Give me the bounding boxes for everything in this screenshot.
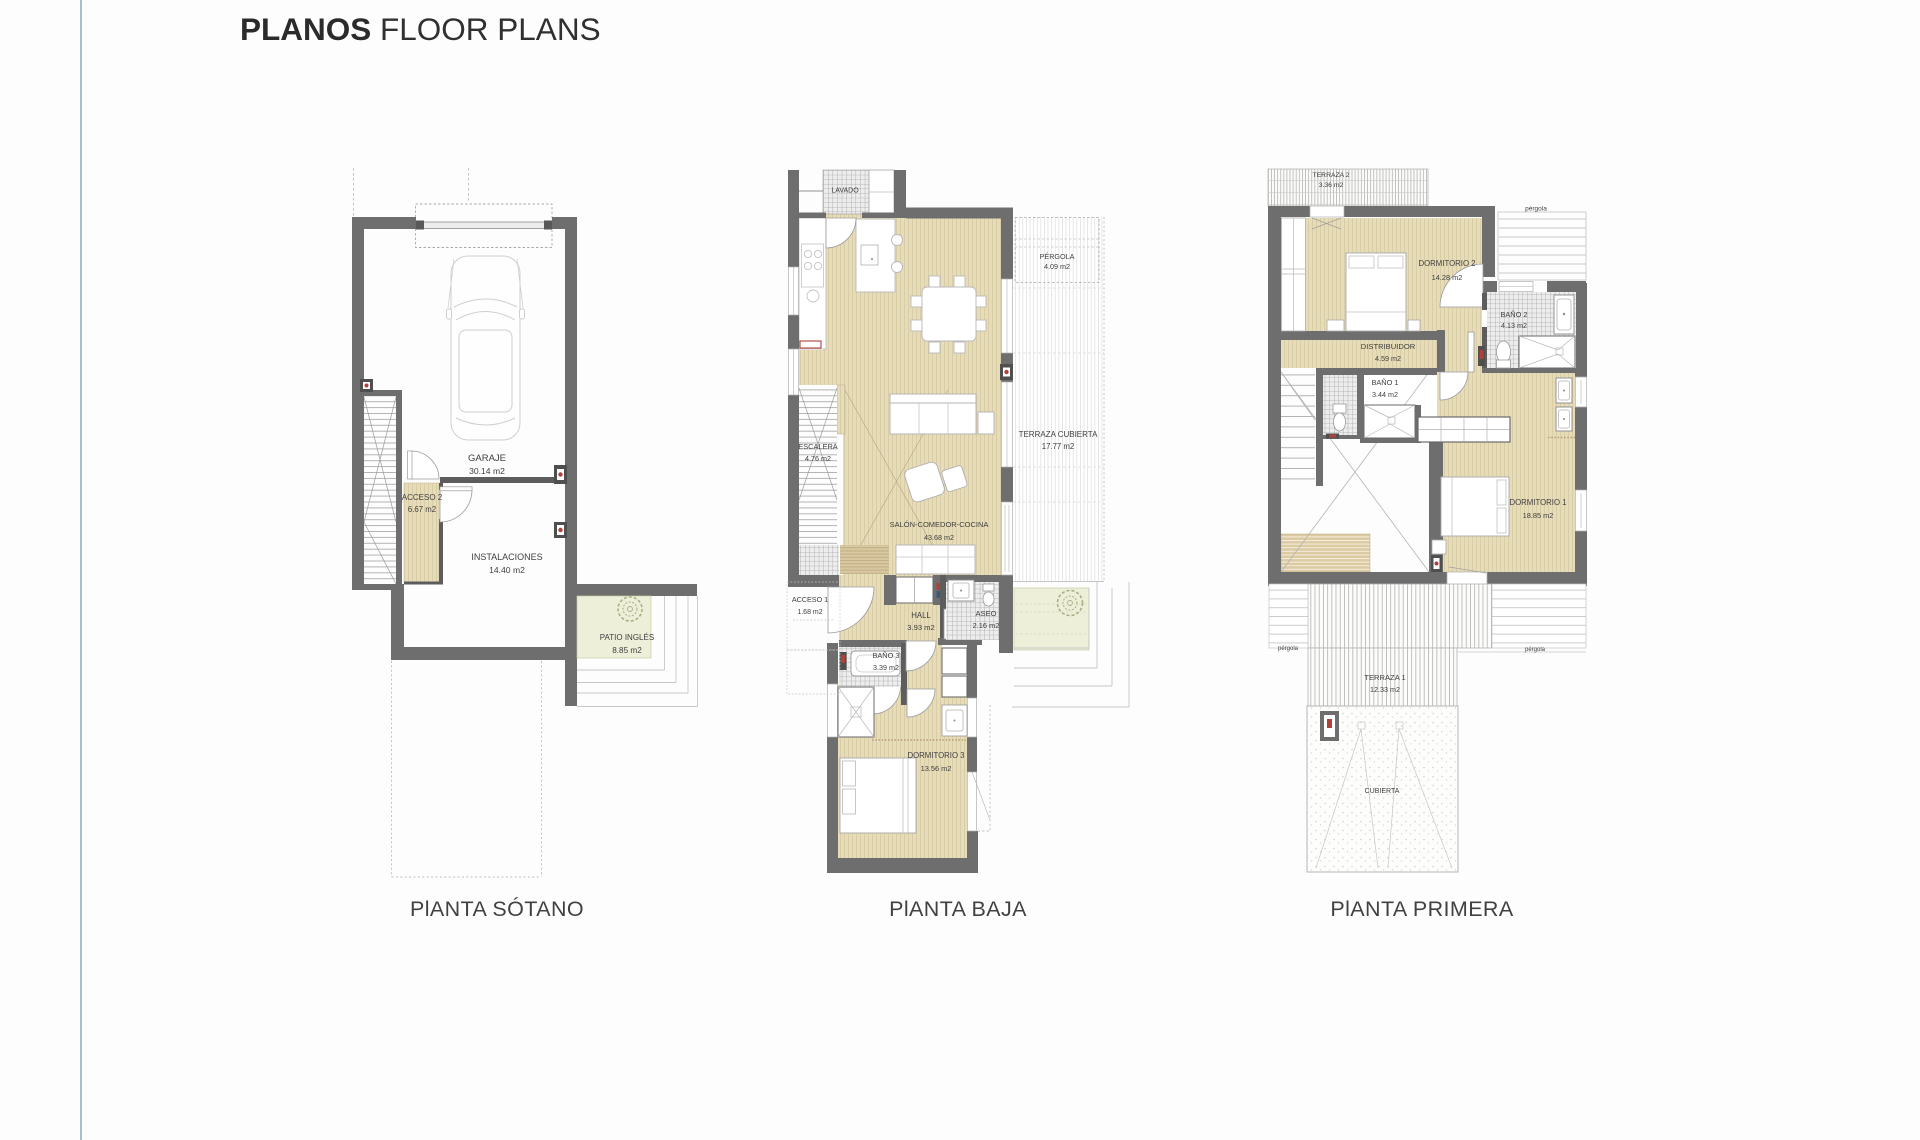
svg-text:PÉRGOLA: PÉRGOLA xyxy=(1040,252,1075,261)
svg-text:3.44 m2: 3.44 m2 xyxy=(1372,390,1398,399)
svg-text:ASEO: ASEO xyxy=(975,609,996,618)
svg-text:12.33 m2: 12.33 m2 xyxy=(1370,685,1400,694)
svg-text:INSTALACIONES: INSTALACIONES xyxy=(471,552,542,562)
svg-text:8.85 m2: 8.85 m2 xyxy=(612,646,642,655)
svg-text:18.85 m2: 18.85 m2 xyxy=(1523,511,1554,520)
svg-text:DISTRIBUIDOR: DISTRIBUIDOR xyxy=(1361,342,1416,351)
svg-text:6.67 m2: 6.67 m2 xyxy=(408,505,436,514)
svg-text:3.93 m2: 3.93 m2 xyxy=(907,623,934,632)
svg-text:4.09 m2: 4.09 m2 xyxy=(1044,262,1070,271)
svg-text:BAÑO 3: BAÑO 3 xyxy=(872,651,899,660)
svg-text:14.40 m2: 14.40 m2 xyxy=(489,565,525,575)
svg-text:ACCESO 1: ACCESO 1 xyxy=(792,595,828,604)
svg-text:43.68 m2: 43.68 m2 xyxy=(924,533,954,542)
svg-text:pérgola: pérgola xyxy=(1278,646,1299,652)
svg-text:TERRAZA 1: TERRAZA 1 xyxy=(1364,673,1405,682)
svg-text:pérgola: pérgola xyxy=(1525,206,1547,213)
svg-text:ESCALERA: ESCALERA xyxy=(798,442,838,451)
svg-text:GARAJE: GARAJE xyxy=(468,453,506,464)
svg-text:BAÑO 2: BAÑO 2 xyxy=(1500,310,1527,319)
svg-text:PlANTA SÓTANO: PlANTA SÓTANO xyxy=(410,896,584,921)
svg-text:DORMITORIO 2: DORMITORIO 2 xyxy=(1418,259,1475,268)
svg-text:30.14 m2: 30.14 m2 xyxy=(469,466,505,476)
svg-text:4.13 m2: 4.13 m2 xyxy=(1501,321,1527,330)
svg-text:1.68 m2: 1.68 m2 xyxy=(797,609,822,616)
svg-text:4.76 m2: 4.76 m2 xyxy=(805,454,831,463)
svg-text:SALÓN-COMEDOR-COCINA: SALÓN-COMEDOR-COCINA xyxy=(890,520,989,529)
svg-text:14.28 m2: 14.28 m2 xyxy=(1432,273,1463,282)
svg-text:pérgola: pérgola xyxy=(1525,647,1546,653)
svg-text:TERRAZA CUBIERTA: TERRAZA CUBIERTA xyxy=(1019,430,1098,439)
svg-text:3.36 m2: 3.36 m2 xyxy=(1319,182,1344,189)
svg-text:LAVADO: LAVADO xyxy=(831,188,859,195)
svg-text:PATIO INGLÉS: PATIO INGLÉS xyxy=(600,633,654,642)
svg-text:13.56 m2: 13.56 m2 xyxy=(921,764,952,773)
svg-text:TERRAZA 2: TERRAZA 2 xyxy=(1312,172,1349,179)
svg-text:BAÑO 1: BAÑO 1 xyxy=(1371,378,1398,387)
svg-text:PlANTA PRIMERA: PlANTA PRIMERA xyxy=(1330,897,1513,921)
svg-text:3.39 m2: 3.39 m2 xyxy=(873,663,899,672)
svg-text:17.77 m2: 17.77 m2 xyxy=(1042,442,1075,451)
svg-text:DORMITORIO 1: DORMITORIO 1 xyxy=(1509,498,1566,507)
svg-text:4.59 m2: 4.59 m2 xyxy=(1375,354,1401,363)
svg-text:CUBIERTA: CUBIERTA xyxy=(1365,788,1400,795)
svg-text:HALL: HALL xyxy=(911,611,931,620)
svg-text:ACCESO 2: ACCESO 2 xyxy=(402,493,443,502)
svg-text:PlANTA BAJA: PlANTA BAJA xyxy=(889,897,1027,921)
svg-text:2.16 m2: 2.16 m2 xyxy=(973,621,1000,630)
svg-text:DORMITORIO 3: DORMITORIO 3 xyxy=(907,751,964,760)
